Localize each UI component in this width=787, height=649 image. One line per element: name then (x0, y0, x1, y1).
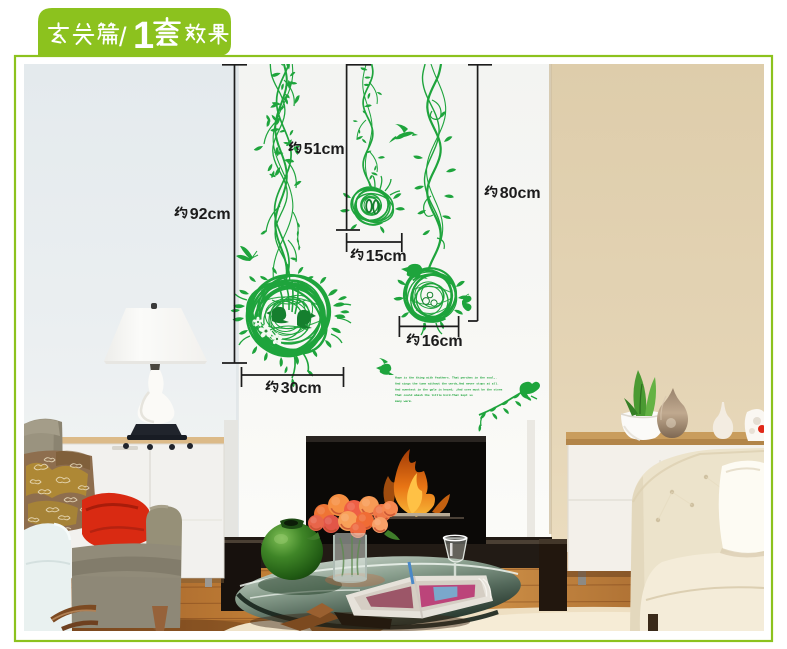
svg-text:many warm.: many warm. (395, 399, 413, 403)
svg-text:16cm: 16cm (422, 333, 463, 350)
svg-text:Hope is the thing with feather: Hope is the thing with feathers. That pe… (395, 376, 497, 380)
svg-text:30cm: 30cm (281, 380, 322, 397)
svg-text:80cm: 80cm (500, 185, 541, 202)
svg-text:15cm: 15cm (366, 248, 407, 265)
svg-text:/: / (119, 22, 127, 52)
svg-text:1: 1 (133, 15, 154, 57)
svg-text:51cm: 51cm (304, 141, 345, 158)
svg-text:That could abash the little bi: That could abash the little bird.That ke… (395, 393, 473, 397)
svg-text:92cm: 92cm (190, 206, 231, 223)
svg-text:And sweetest in the gale is he: And sweetest in the gale is heard; ;And … (395, 387, 502, 391)
svg-text:And sings the tune without the: And sings the tune without the words,And… (395, 381, 499, 385)
